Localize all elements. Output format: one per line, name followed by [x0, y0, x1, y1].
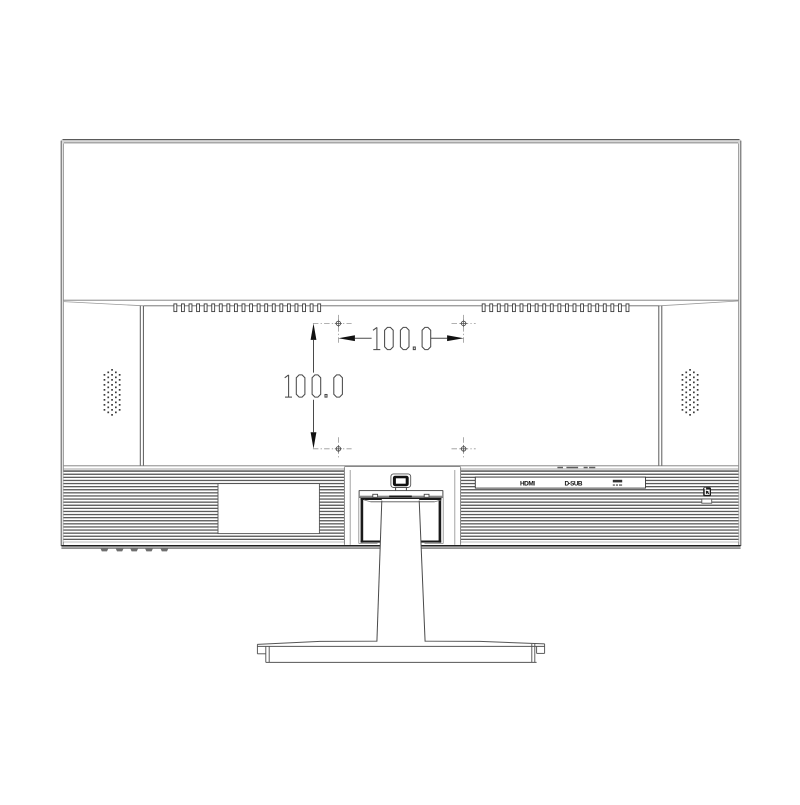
svg-text:D-SUB: D-SUB: [565, 480, 583, 487]
svg-text:HDMI: HDMI: [520, 480, 535, 487]
